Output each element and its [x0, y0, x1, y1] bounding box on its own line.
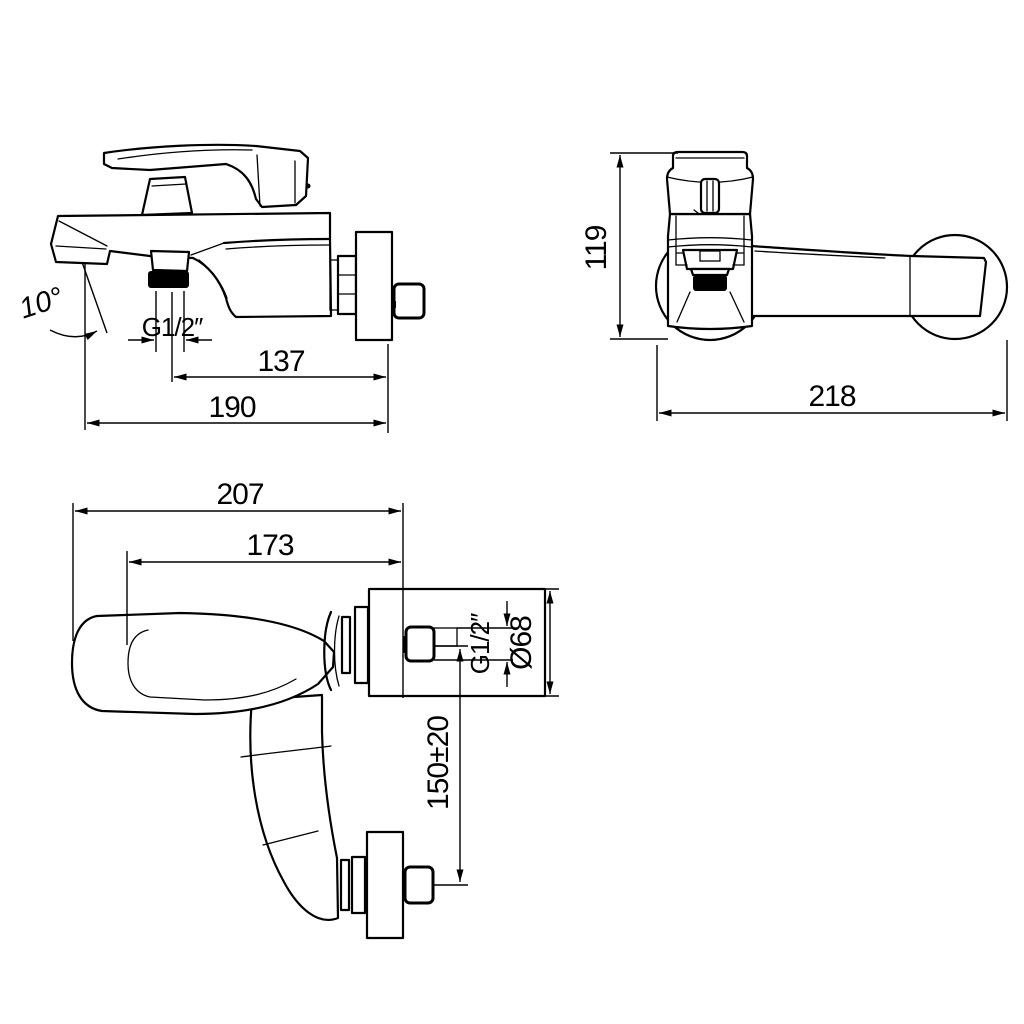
outlet-thread-label: G1/2″: [142, 312, 203, 342]
upper-union-ring: [342, 617, 350, 673]
connector-ribs: [338, 256, 356, 314]
lever-handle-front: [751, 246, 986, 316]
diverter-knob: [142, 177, 192, 215]
outlet-thread-ring-front: [693, 275, 727, 291]
lower-escutcheon-plan: [367, 832, 403, 938]
outlet-thread-ring: [148, 271, 189, 288]
dim-diameter-label: Ø68: [505, 616, 538, 670]
lower-inlet-fitting: [405, 867, 433, 903]
outlet-bracket-front: [683, 250, 737, 269]
inlet-fitting-side: [394, 284, 424, 318]
dim-207-label: 207: [216, 478, 263, 511]
dim-119-label: 119: [580, 225, 613, 270]
lever-slot: [701, 179, 719, 213]
faucet-dimension-drawing: 10° G1/2″ 137 190: [0, 0, 1024, 1024]
inlet-thread-label: G1/2″: [465, 613, 495, 674]
fitting-seal-tick: [392, 301, 396, 308]
dim-218-label: 218: [808, 380, 855, 413]
upper-union-nut: [355, 607, 368, 683]
dim-190-label: 190: [208, 391, 255, 424]
dim-173-label: 173: [246, 529, 293, 562]
outlet-collar: [151, 251, 189, 271]
dim-150-label: 150±20: [422, 716, 455, 810]
outlet-collar-front: [691, 269, 729, 275]
lever-dot-detail: [306, 184, 311, 189]
dim-137-label: 137: [257, 345, 304, 378]
lower-union-nut: [352, 857, 365, 913]
wall-escutcheon-side: [356, 232, 392, 340]
lower-union-ring: [341, 860, 349, 910]
technical-drawing-sheet: 10° G1/2″ 137 190: [0, 0, 1024, 1024]
upper-inlet-fitting: [406, 627, 434, 661]
